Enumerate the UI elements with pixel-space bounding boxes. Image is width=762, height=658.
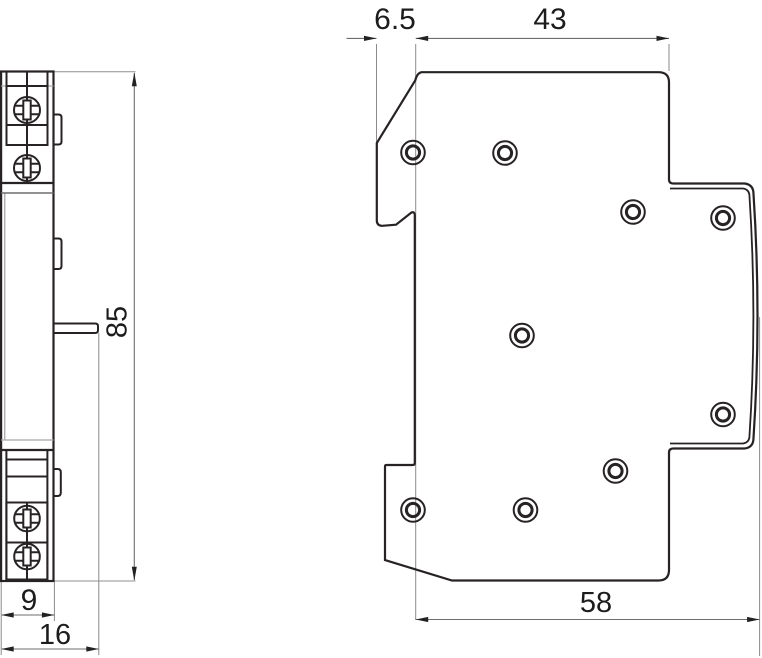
svg-text:85: 85 bbox=[102, 306, 134, 338]
svg-text:16: 16 bbox=[39, 619, 71, 651]
svg-text:9: 9 bbox=[21, 584, 38, 617]
svg-text:6.5: 6.5 bbox=[374, 3, 416, 36]
svg-text:58: 58 bbox=[580, 587, 612, 619]
svg-text:43: 43 bbox=[533, 3, 566, 36]
